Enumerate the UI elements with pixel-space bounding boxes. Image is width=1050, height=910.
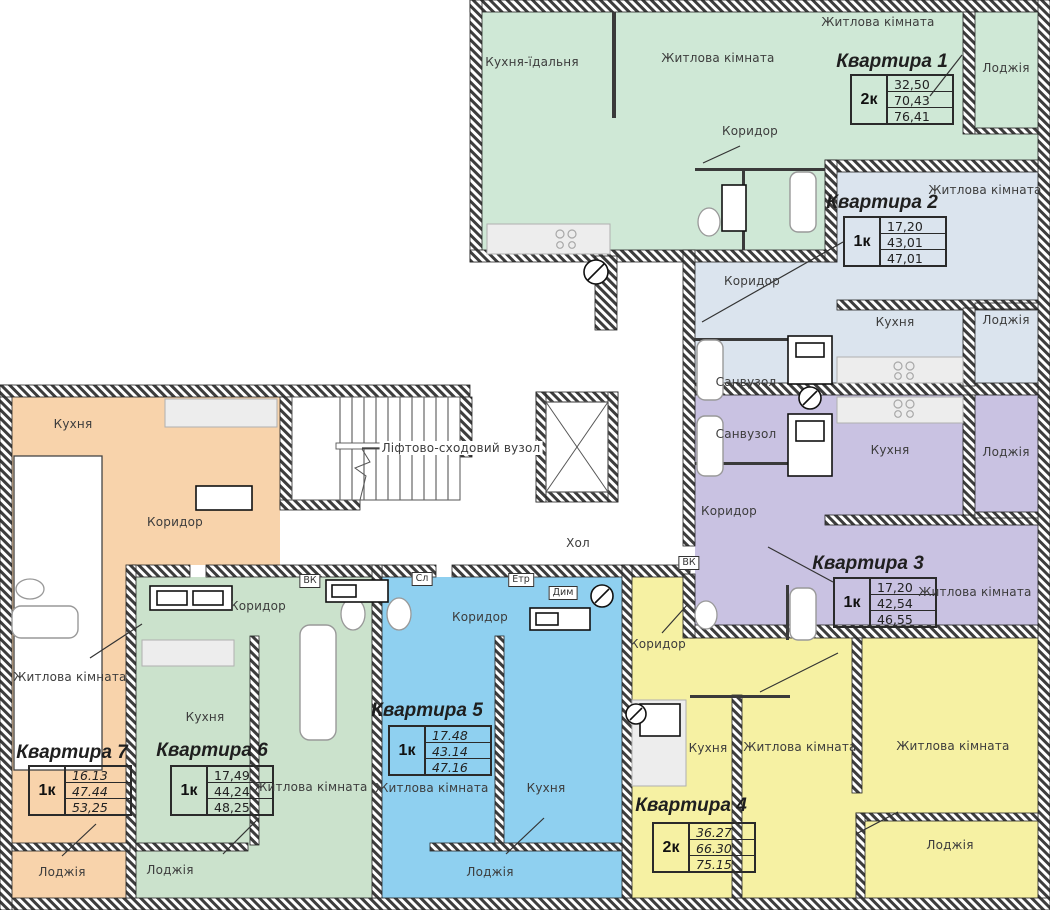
toilet (698, 208, 720, 236)
apt2-area-living: 17,20 (881, 218, 945, 234)
apt5-area-apartment: 43.14 (426, 743, 490, 759)
apt2-corridor-label: Коридор (724, 274, 780, 288)
apt3-kitchen-label: Кухня (871, 443, 910, 457)
bathtub (697, 340, 723, 400)
apt7-corridor-label: Коридор (147, 515, 203, 529)
apt2-kitchen-label: Кухня (876, 315, 915, 329)
apt6-room-count: 1к (172, 767, 208, 814)
apt2-title: Квартира 2 (826, 192, 938, 214)
bathtub (790, 172, 816, 232)
apt4-area-total: 75.15 (690, 856, 754, 871)
apt3-loggia-label: Лоджія (982, 445, 1029, 459)
vent-block (150, 586, 232, 610)
apt7-area-total: 53,25 (66, 799, 130, 814)
apt1-area-total: 76,41 (888, 108, 952, 123)
apt1-area-apartment: 70,43 (888, 92, 952, 108)
apt6-title: Квартира 6 (156, 740, 268, 762)
apt1-title: Квартира 1 (836, 51, 948, 73)
apt2-area-apartment: 43,01 (881, 234, 945, 250)
apt2-info-table: 1к 17,20 43,01 47,01 (843, 216, 947, 267)
bathtub (12, 606, 78, 638)
apt5-info-table: 1к 17.48 43.14 47.16 (388, 725, 492, 776)
apt7-room-count: 1к (30, 767, 66, 814)
apt5-area-living: 17.48 (426, 727, 490, 743)
apt5-area-total: 47.16 (426, 759, 490, 774)
apt1-corridor-label: Коридор (722, 124, 778, 138)
apt4-info-table: 2к 36.27 66.30 75.15 (652, 822, 756, 873)
apt7-info-table: 1к 16.13 47.44 53,25 (28, 765, 132, 816)
apt1-kitchen-dining-label: Кухня-їдальня (485, 55, 579, 69)
kitchen-counter (165, 399, 277, 427)
apt3-room-count: 1к (835, 579, 871, 626)
shaft-tag-sl: Сл (412, 572, 433, 586)
fan-symbols (584, 260, 821, 724)
kitchen-counter (487, 224, 610, 254)
apt5-corridor-label: Коридор (452, 610, 508, 624)
toilet (387, 598, 411, 630)
apt2-living-label: Житлова кімната (928, 183, 1041, 197)
apt3-corridor-label: Коридор (701, 504, 757, 518)
bathtub (300, 625, 336, 740)
apt7-kitchen-label: Кухня (54, 417, 93, 431)
apt3-living-label: Житлова кімната (918, 585, 1031, 599)
apt1-loggia-label: Лоджія (982, 61, 1029, 75)
apt2-loggia-label: Лоджія (982, 313, 1029, 327)
kitchen-counter (142, 640, 234, 666)
hall-label: Хол (566, 536, 590, 550)
apt3-area-total: 46,55 (871, 611, 935, 626)
apt5-kitchen-label: Кухня (527, 781, 566, 795)
apt1-living2-label: Житлова кімната (821, 15, 934, 29)
apt3-bathroom-label: Санвузол (716, 427, 777, 441)
shaft-tag-vk-a: ВК (299, 574, 320, 588)
stair-core-label: Ліфтово-сходовий вузол (380, 441, 543, 455)
apt6-corridor-label: Коридор (230, 599, 286, 613)
apt7-living-label: Житлова кімната (13, 670, 126, 684)
bathtub (697, 416, 723, 476)
toilet (695, 601, 717, 629)
apt6-loggia-label: Лоджія (146, 863, 193, 877)
apt4-loggia-label: Лоджія (926, 838, 973, 852)
apt5-living-label: Житлова кімната (375, 781, 488, 795)
shaft-tag-etr: Етр (508, 573, 534, 587)
vent-block (326, 580, 388, 602)
apt3-title: Квартира 3 (812, 553, 924, 575)
apt6-area-total: 48,25 (208, 799, 272, 814)
apt4-title: Квартира 4 (635, 795, 747, 817)
apt1-living1-label: Житлова кімната (661, 51, 774, 65)
bathtub (790, 588, 816, 640)
apt4-corridor-label: Коридор (630, 637, 686, 651)
apt7-area-apartment: 47.44 (66, 783, 130, 799)
shaft-tag-vk-b: ВК (678, 556, 699, 570)
vent-block (196, 486, 252, 510)
apt5-room-count: 1к (390, 727, 426, 774)
apt5-title: Квартира 5 (371, 700, 483, 722)
vent-block (788, 414, 832, 476)
apt4-kitchen-label: Кухня (689, 741, 728, 755)
apt1-info-table: 2к 32,50 70,43 76,41 (850, 74, 954, 125)
apt7-title: Квартира 7 (16, 742, 128, 764)
apt2-area-total: 47,01 (881, 250, 945, 265)
apt7-loggia-label: Лоджія (38, 865, 85, 879)
apt6-kitchen-label: Кухня (186, 710, 225, 724)
vent-block (722, 185, 746, 231)
apt1-area-living: 32,50 (888, 76, 952, 92)
apt7-area-living: 16.13 (66, 767, 130, 783)
vent-block (530, 608, 590, 630)
vent-block (640, 704, 680, 736)
apt2-room-count: 1к (845, 218, 881, 265)
apt5-loggia-label: Лоджія (466, 865, 513, 879)
elevator-shaft (546, 402, 608, 492)
apt4-living1-label: Житлова кімната (743, 740, 856, 754)
apt6-living-label: Житлова кімната (254, 780, 367, 794)
floor-plan: Квартира 1 2к 32,50 70,43 76,41 Кухня-їд… (0, 0, 1050, 910)
apt4-area-apartment: 66.30 (690, 840, 754, 856)
apt4-area-living: 36.27 (690, 824, 754, 840)
apt4-room-count: 2к (654, 824, 690, 871)
apt1-room-count: 2к (852, 76, 888, 123)
apt2-bathroom-label: Санвузол (716, 375, 777, 389)
apt4-living2-label: Житлова кімната (896, 739, 1009, 753)
toilet (16, 579, 44, 599)
shaft-tag-dym: Дим (549, 586, 578, 600)
